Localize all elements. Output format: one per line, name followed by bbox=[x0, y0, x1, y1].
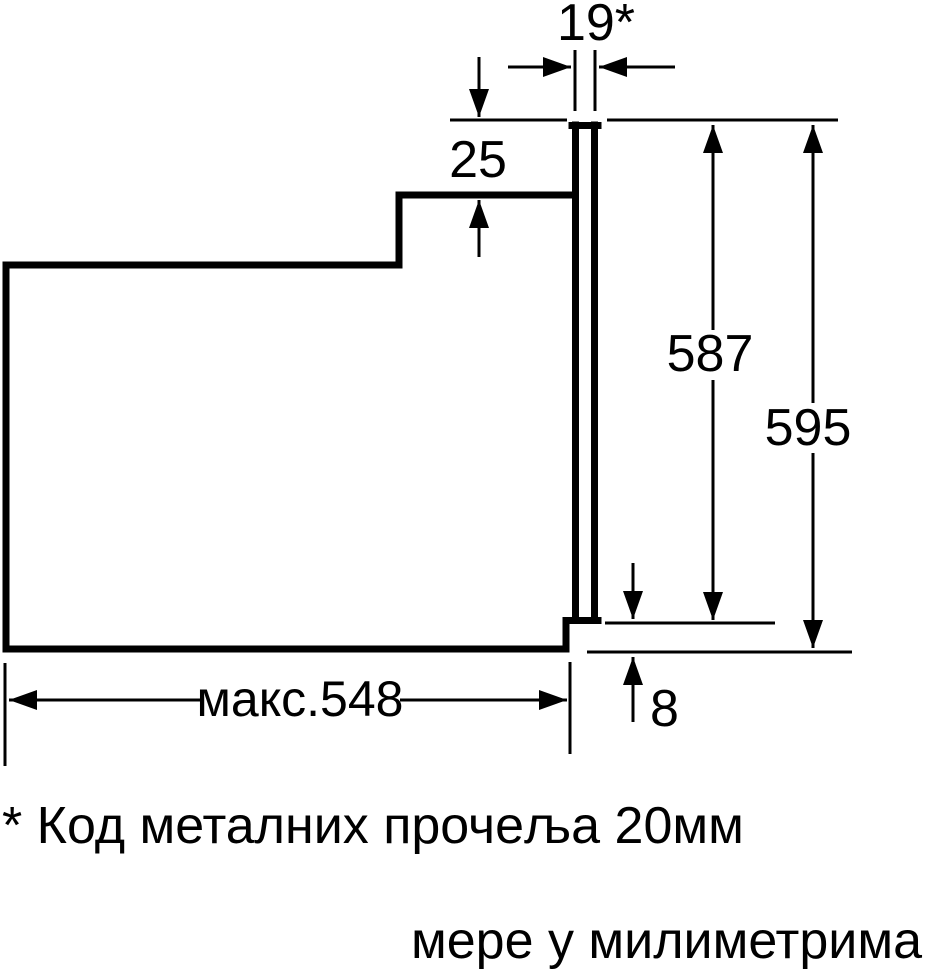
dim-label-8: 8 bbox=[650, 680, 679, 738]
dim-niche-height: 587 bbox=[667, 125, 754, 620]
dim-label-max-548: макс.548 bbox=[197, 671, 404, 727]
dim-overall-height: 595 bbox=[765, 125, 852, 648]
reference-lines bbox=[450, 120, 852, 652]
oven-carcass-outline bbox=[6, 195, 575, 649]
footnote-metal-fronts: * Код металних прочеља 20мм bbox=[2, 797, 744, 855]
dim-label-19: 19* bbox=[557, 0, 635, 52]
dim-label-587: 587 bbox=[667, 325, 754, 383]
front-panel-outline bbox=[566, 125, 598, 621]
dim-max-depth: макс.548 bbox=[5, 662, 570, 766]
dim-top-recess: 25 bbox=[449, 57, 507, 257]
dim-label-25: 25 bbox=[449, 131, 507, 189]
units-caption: мере у милиметрима bbox=[411, 912, 922, 970]
oven-body-outline bbox=[6, 195, 575, 649]
installation-diagram: 19* 25 587 595 8 bbox=[0, 0, 926, 970]
dim-label-595: 595 bbox=[765, 399, 852, 457]
diagram-canvas: 19* 25 587 595 8 bbox=[0, 0, 926, 970]
dim-front-panel-depth: 19* bbox=[508, 0, 675, 111]
